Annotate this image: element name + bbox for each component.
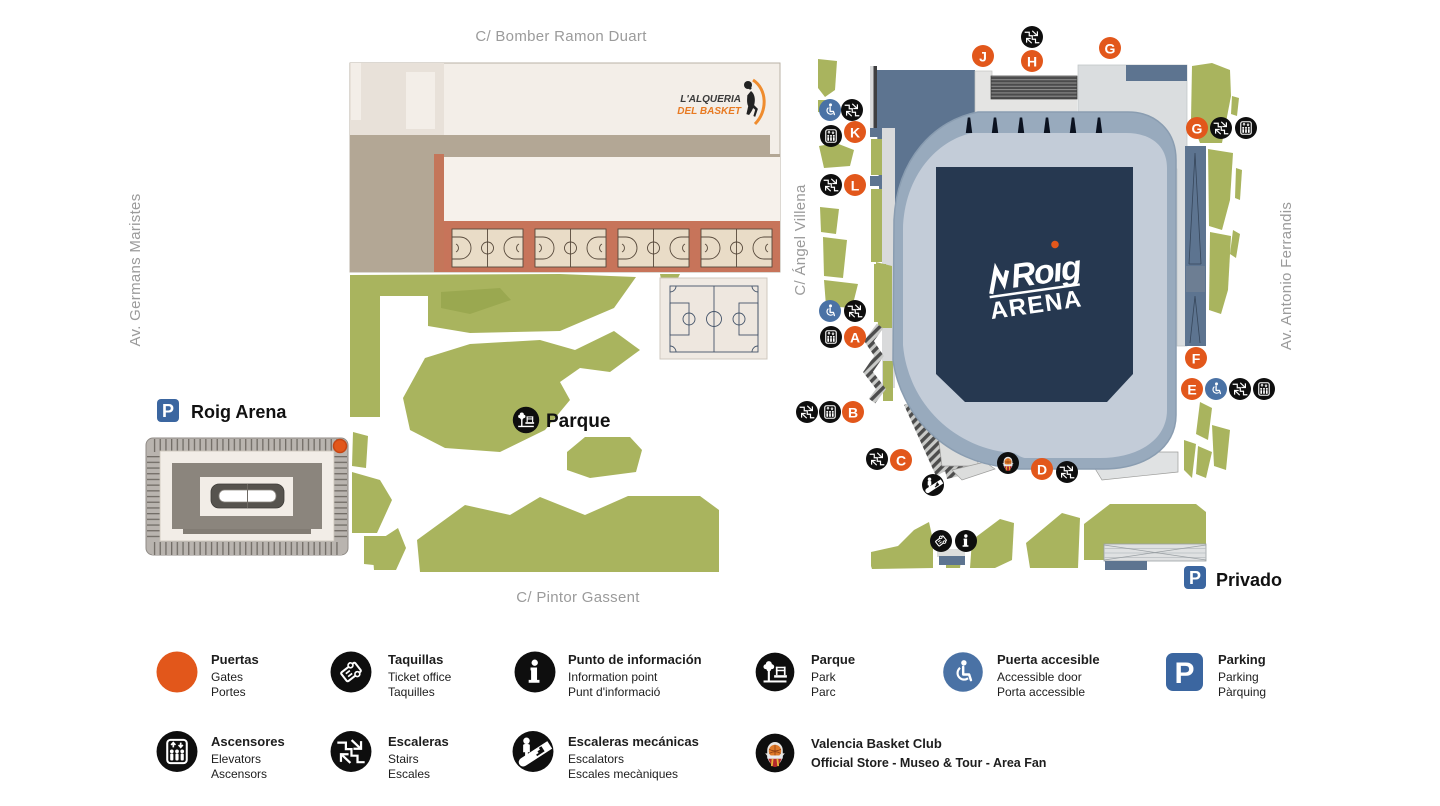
svg-text:Roig Arena: Roig Arena (191, 402, 287, 422)
svg-text:D: D (1037, 462, 1047, 478)
svg-text:Parque: Parque (546, 411, 610, 432)
svg-text:P: P (1174, 657, 1194, 690)
svg-text:Punt d'informació: Punt d'informació (568, 685, 661, 699)
svg-text:Parking: Parking (1218, 652, 1266, 667)
svg-text:Taquillas: Taquillas (388, 652, 443, 667)
svg-text:Valencia Basket Club: Valencia Basket Club (811, 736, 942, 751)
svg-text:K: K (850, 125, 860, 141)
svg-text:C/ Pintor Gassent: C/ Pintor Gassent (516, 589, 640, 606)
svg-text:Punto de información: Punto de información (568, 652, 702, 667)
svg-text:Puertas: Puertas (211, 652, 259, 667)
svg-text:Ascensores: Ascensores (211, 734, 285, 749)
svg-text:Escalators: Escalators (568, 752, 624, 766)
svg-text:Parking: Parking (1218, 670, 1259, 684)
svg-text:L'ALQUERIA: L'ALQUERIA (680, 94, 741, 105)
svg-text:Escaleras mecánicas: Escaleras mecánicas (568, 734, 699, 749)
svg-text:Parque: Parque (811, 652, 855, 667)
svg-text:J: J (979, 49, 987, 65)
svg-text:Official Store - Museo & Tour: Official Store - Museo & Tour - Area Fan (811, 756, 1046, 770)
svg-text:P: P (162, 401, 174, 421)
svg-text:Parc: Parc (811, 685, 836, 699)
svg-text:P: P (1189, 568, 1201, 588)
svg-text:Privado: Privado (1216, 570, 1282, 590)
svg-text:C/ Ángel Villena: C/ Ángel Villena (792, 184, 809, 296)
svg-text:L: L (851, 178, 860, 194)
svg-text:Av. Germans Maristes: Av. Germans Maristes (127, 194, 144, 347)
svg-text:Ticket office: Ticket office (388, 670, 452, 684)
svg-text:Porta accessible: Porta accessible (997, 685, 1085, 699)
svg-text:C/ Bomber Ramon Duart: C/ Bomber Ramon Duart (475, 28, 647, 45)
svg-text:Park: Park (811, 670, 837, 684)
svg-text:Accessible door: Accessible door (997, 670, 1082, 684)
svg-text:Portes: Portes (211, 685, 246, 699)
svg-text:Escaleras: Escaleras (388, 734, 449, 749)
svg-text:Pàrquing: Pàrquing (1218, 685, 1266, 699)
svg-text:Escales mecàniques: Escales mecàniques (568, 767, 678, 781)
svg-text:Elevators: Elevators (211, 752, 261, 766)
svg-text:Puerta accesible: Puerta accesible (997, 652, 1100, 667)
svg-text:Gates: Gates (211, 670, 243, 684)
svg-text:H: H (1027, 54, 1037, 70)
svg-text:Information point: Information point (568, 670, 658, 684)
svg-text:Taquilles: Taquilles (388, 685, 435, 699)
svg-text:B: B (848, 405, 858, 421)
svg-text:Ascensors: Ascensors (211, 767, 267, 781)
svg-text:Stairs: Stairs (388, 752, 419, 766)
svg-text:E: E (1187, 382, 1196, 398)
svg-text:DEL BASKET: DEL BASKET (677, 106, 742, 117)
svg-text:F: F (1192, 351, 1201, 367)
svg-text:Escales: Escales (388, 767, 430, 781)
svg-text:A: A (850, 330, 860, 346)
svg-text:Av. Antonio Ferrandis: Av. Antonio Ferrandis (1278, 202, 1295, 350)
svg-text:G: G (1192, 121, 1203, 137)
svg-text:C: C (896, 453, 906, 469)
svg-text:G: G (1105, 41, 1116, 57)
